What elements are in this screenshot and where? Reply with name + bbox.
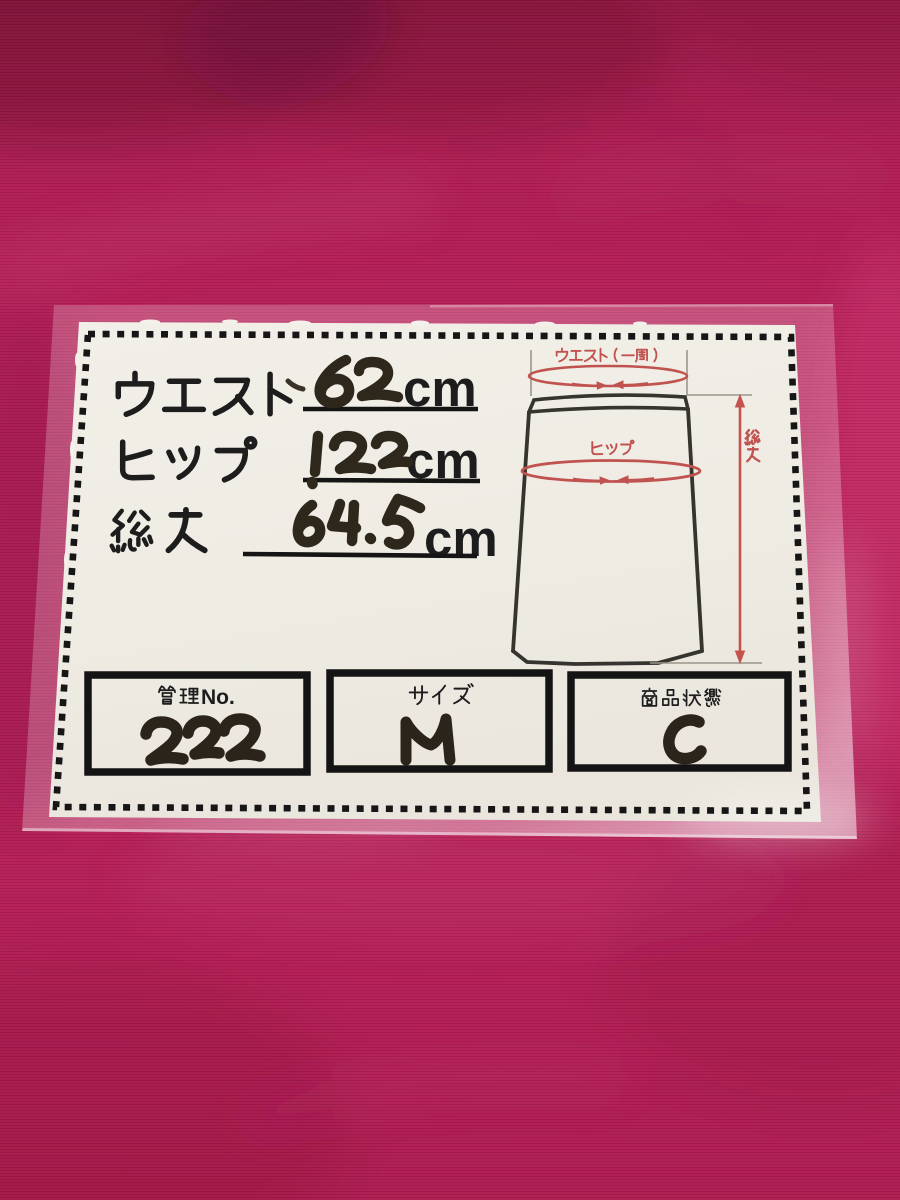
svg-text:No.: No. xyxy=(201,686,235,709)
svg-text:cm: cm xyxy=(424,510,498,567)
